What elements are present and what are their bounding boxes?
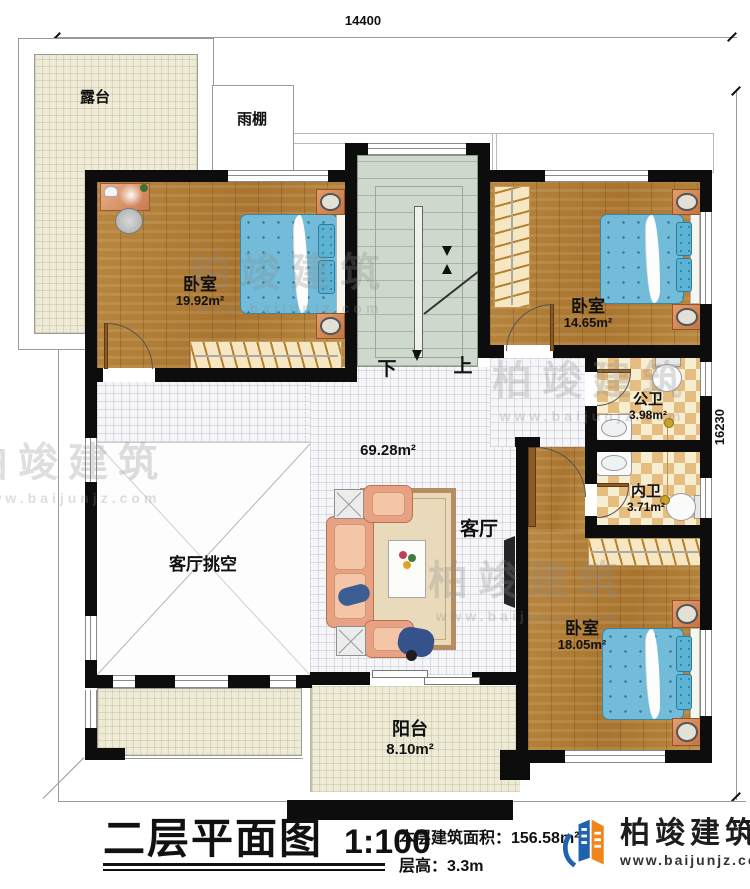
wall — [553, 345, 712, 358]
sliding-door-panel — [372, 670, 428, 678]
balcony-label: 阳台 — [382, 720, 438, 740]
side-table — [336, 626, 366, 656]
brand-logo-icon — [558, 814, 614, 872]
corridor-east-floor — [490, 358, 585, 447]
sofa-cushion — [334, 524, 366, 570]
eave-line — [58, 348, 59, 802]
window — [700, 212, 712, 304]
bedroom-bottom-right-label: 卧室 — [550, 620, 614, 639]
tv-panel — [504, 536, 515, 608]
bedroom-left-area: 19.92m² — [164, 294, 236, 308]
sofa-long — [326, 516, 374, 628]
nightstand — [672, 189, 702, 215]
wardrobe — [588, 538, 702, 566]
bedroom-bottom-right-area: 18.05m² — [546, 638, 618, 652]
pillow — [676, 674, 692, 710]
lower-roof-strip — [97, 688, 302, 756]
wall — [85, 748, 125, 760]
wall — [585, 440, 712, 452]
window — [368, 143, 466, 155]
blanket-fold — [293, 215, 308, 313]
toilet-bowl — [652, 364, 682, 392]
window — [85, 675, 310, 688]
floor-plan: 14400 16230 露台 雨棚 — [0, 0, 750, 889]
canopy-label: 雨棚 — [214, 112, 290, 129]
wall — [500, 750, 530, 780]
wall — [585, 358, 597, 372]
wall — [345, 143, 357, 382]
window — [700, 362, 712, 396]
floor-area-note: 本层建筑面积：156.58m² — [399, 830, 580, 848]
nightstand — [672, 718, 702, 746]
wall — [135, 675, 175, 688]
window — [228, 170, 328, 182]
living-void-label: 客厅挑空 — [148, 556, 258, 575]
wall — [85, 368, 103, 382]
side-table — [334, 489, 364, 519]
person-head — [406, 650, 417, 661]
window — [700, 630, 712, 716]
nightstand — [672, 304, 702, 330]
floor-height-note: 层高：3.3m — [399, 858, 483, 876]
private-bath-label: 内卫 — [616, 484, 676, 501]
desk-lamp-icon — [104, 186, 118, 197]
stair-direction-arrow — [412, 350, 422, 361]
bedroom-left-label: 卧室 — [168, 276, 232, 295]
nightstand — [316, 189, 345, 215]
wardrobe — [494, 186, 530, 308]
private-bath-area: 3.71m² — [616, 501, 676, 514]
sink-private — [596, 450, 632, 476]
desk-chair — [115, 208, 143, 234]
living-room-label: 客厅 — [454, 520, 504, 541]
brand-name: 柏竣建筑 — [620, 819, 750, 849]
nightstand — [672, 600, 702, 628]
pillow — [318, 224, 335, 258]
window — [85, 438, 97, 482]
dimension-line-right — [736, 92, 737, 800]
nightstand — [316, 313, 345, 339]
public-bath-area: 3.98m² — [618, 409, 678, 422]
window — [85, 616, 97, 660]
window — [700, 478, 712, 518]
wall — [85, 675, 113, 688]
pillow — [676, 258, 692, 292]
door-leaf — [528, 447, 536, 527]
blanket-fold — [645, 629, 660, 719]
wall — [155, 368, 357, 382]
flower-decor — [399, 551, 407, 559]
coffee-table — [388, 540, 426, 598]
window — [545, 170, 648, 182]
wall — [515, 437, 540, 447]
window — [85, 690, 97, 728]
window — [565, 750, 665, 763]
bedroom-top-right-label: 卧室 — [556, 298, 620, 317]
dimension-height-label: 16230 — [713, 397, 727, 457]
toilet-public — [651, 357, 683, 391]
armchair-top — [363, 485, 413, 523]
eave-line — [43, 757, 85, 799]
wall — [516, 437, 528, 762]
sofa-cushion — [372, 492, 405, 516]
stairs-down-label: 下 — [372, 360, 402, 381]
wall — [228, 675, 270, 688]
plan-title: 二层平面图 — [103, 816, 323, 862]
blanket-fold — [645, 215, 660, 303]
eave-rect — [492, 133, 714, 173]
stairs-up-label: 上 — [448, 357, 478, 378]
corridor-west-floor — [97, 382, 345, 442]
wall — [85, 170, 97, 388]
terrace-label: 露台 — [60, 90, 130, 107]
title-underline — [103, 863, 385, 866]
pillow — [676, 636, 692, 672]
wall — [490, 345, 504, 358]
dimension-width-label: 14400 — [328, 14, 398, 28]
stair-arrow-up — [442, 264, 452, 274]
lower-roof-line — [97, 758, 303, 759]
bed-top-right — [600, 214, 684, 304]
balcony-area: 8.10m² — [378, 742, 442, 759]
plant-icon — [140, 184, 148, 192]
wall — [310, 672, 370, 685]
title-underline — [103, 869, 385, 871]
wardrobe — [190, 341, 342, 370]
wall — [478, 143, 490, 358]
brand-logo: 柏竣建筑 www.baijunjz.com — [558, 814, 750, 872]
brand-website: www.baijunjz.com — [620, 852, 750, 868]
canopy — [212, 85, 294, 175]
bedroom-top-right-area: 14.65m² — [552, 316, 624, 330]
living-room-area: 69.28m² — [348, 443, 428, 460]
sliding-door-panel — [424, 677, 480, 685]
pillow — [676, 222, 692, 256]
stair-arrow-down — [442, 246, 452, 256]
pillow — [318, 260, 335, 294]
public-bath-label: 公卫 — [618, 392, 678, 409]
wall — [585, 525, 712, 538]
stair-rail — [414, 206, 423, 358]
